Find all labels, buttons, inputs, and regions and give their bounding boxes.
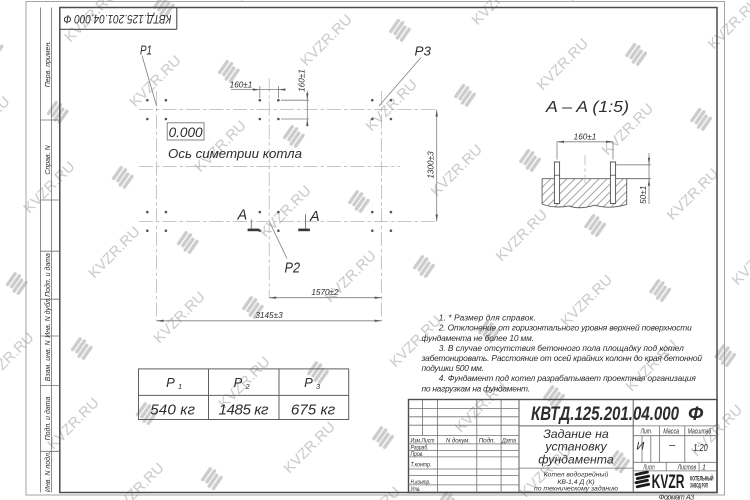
svg-text:0.000: 0.000 [169,125,203,140]
svg-text:Лит.: Лит. [640,429,652,436]
svg-text:P: P [166,375,175,390]
svg-text:Пров.: Пров. [411,451,424,458]
svg-text:Подп.: Подп. [479,436,496,444]
svg-text:N докум.: N докум. [446,436,470,444]
svg-text:Перв. примен.: Перв. примен. [45,41,52,88]
svg-text:И: И [636,440,644,452]
svg-text:540 кг: 540 кг [150,401,195,418]
svg-text:P2: P2 [285,260,301,277]
svg-text:Подп. и дата: Подп. и дата [44,253,52,297]
svg-text:2. Отклонение от горизонтально: 2. Отклонение от горизонтального уровня … [438,323,692,333]
svg-text:A: A [237,208,248,224]
svg-text:Справ. N: Справ. N [45,144,52,174]
svg-text:1485 кг: 1485 кг [219,401,270,418]
svg-text:Подп. и дата: Подп. и дата [44,396,52,440]
svg-text:Инв. N подл.: Инв. N подл. [44,451,52,492]
svg-text:1300±3: 1300±3 [427,151,436,179]
svg-text:1. * Размер для справок.: 1. * Размер для справок. [439,313,536,323]
svg-text:Масштаб: Масштаб [688,428,712,436]
svg-text:1:20: 1:20 [693,443,708,454]
svg-text:Взам. инв. N: Взам. инв. N [45,339,52,381]
svg-text:ЗАВОД РЭП: ЗАВОД РЭП [690,483,708,489]
svg-text:1: 1 [702,464,706,471]
svg-text:подушки 500 мм.: подушки 500 мм. [422,363,485,373]
svg-text:фундамента не более 10 мм.: фундамента не более 10 мм. [422,333,535,343]
svg-text:A – A (1:5): A – A (1:5) [545,99,629,116]
svg-text:КВТД.125.201.04.000 Ф: КВТД.125.201.04.000 Ф [63,12,171,26]
svg-text:675 кг: 675 кг [291,401,336,418]
svg-text:P1: P1 [140,42,152,57]
svg-text:по нагрузкам на фундамент.: по нагрузкам на фундамент. [422,383,531,393]
svg-text:KVZR: KVZR [652,471,685,493]
svg-text:КОТЕЛЬНЫЙ: КОТЕЛЬНЫЙ [690,474,714,482]
svg-text:2: 2 [245,382,251,391]
svg-text:Масса: Масса [663,429,679,436]
svg-text:3. В случае отсутствия бетонно: 3. В случае отсутствия бетонного пола пл… [439,343,684,353]
svg-text:Изм.Лист: Изм.Лист [411,437,435,444]
svg-text:160±1: 160±1 [297,69,306,92]
svg-text:забетонировать. Расстояние от: забетонировать. Расстояние от осей крайн… [421,353,703,363]
svg-text:50±1: 50±1 [639,186,648,204]
svg-text:Ф: Ф [688,403,704,425]
svg-text:A: A [309,209,320,225]
svg-text:4. Фундамент под котел разраба: 4. Фундамент под котел разрабатывает про… [439,373,697,383]
svg-text:Н.контр.: Н.контр. [411,479,431,486]
svg-text:3145±3: 3145±3 [255,311,283,320]
svg-text:Инв. N дубл.: Инв. N дубл. [44,297,52,338]
svg-text:1570±2: 1570±2 [311,288,339,297]
svg-text:Дата: Дата [501,437,516,444]
svg-text:P: P [234,375,243,390]
svg-text:Утв.: Утв. [410,486,421,493]
svg-text:Котел водогрейный: Котел водогрейный [544,470,609,478]
svg-text:P: P [304,375,313,390]
svg-text:Ось симетрии котла: Ось симетрии котла [168,146,302,161]
svg-text:1: 1 [178,382,182,391]
svg-text:Т.контр.: Т.контр. [411,461,432,468]
svg-text:–: – [668,440,676,452]
svg-text:Формат А3: Формат А3 [659,493,695,500]
svg-text:160±1: 160±1 [230,80,253,89]
svg-text:160±1: 160±1 [574,133,597,142]
svg-text:P3: P3 [415,43,432,58]
svg-text:фундамента: фундамента [538,452,614,466]
svg-text:по техническому заданию: по техническому заданию [534,485,618,493]
svg-text:КВТД.125.201.04.000: КВТД.125.201.04.000 [531,403,679,425]
